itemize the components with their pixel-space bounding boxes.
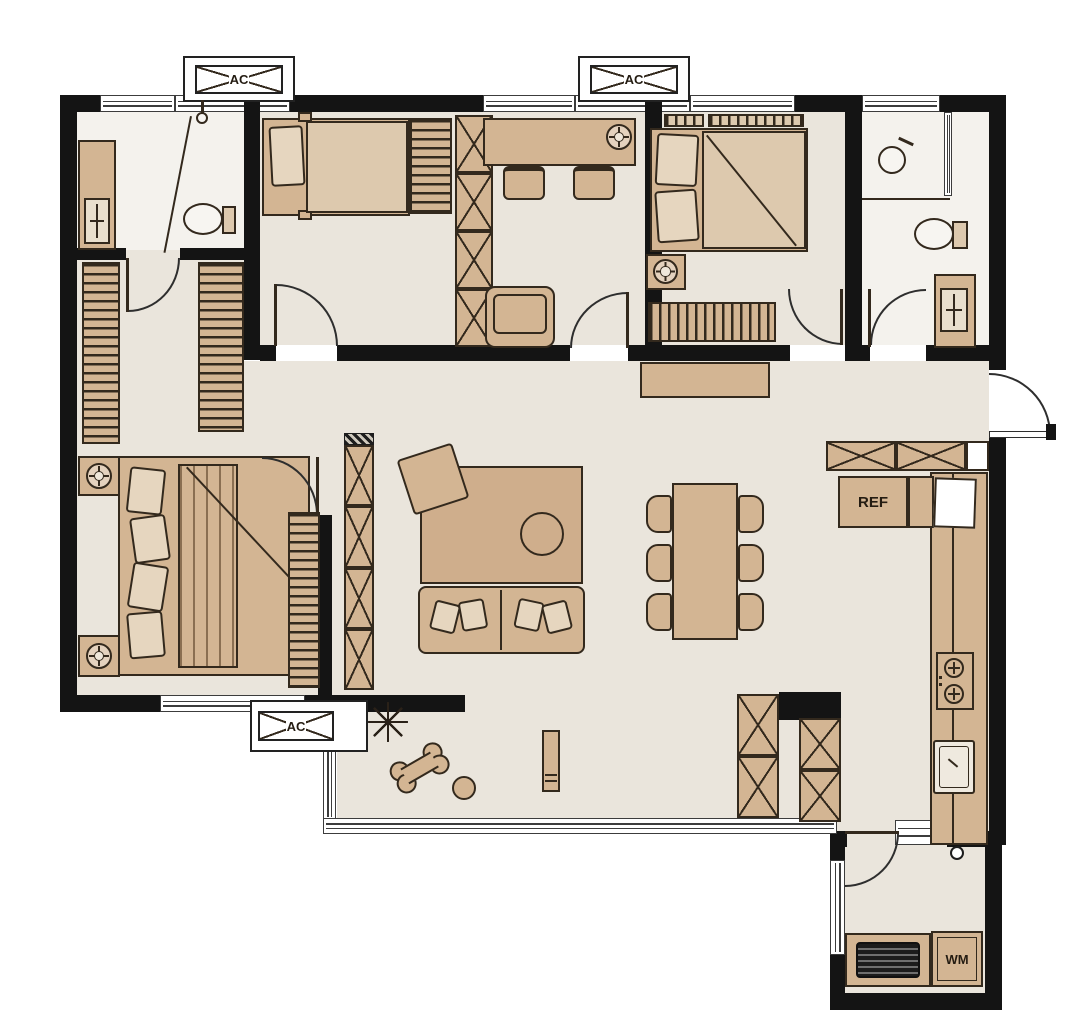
ac-platform-bottom-box: AC [258, 711, 334, 741]
sideboard [640, 362, 770, 398]
snowflake-icon [368, 702, 408, 742]
kitchen-prep-sink [933, 477, 977, 528]
wardrobe-hanging-icon [410, 118, 452, 214]
ceiling-lamp-icon [86, 463, 112, 489]
cabinet-x-icon [455, 231, 493, 289]
wall-bedroom-bathroom-divider [845, 95, 862, 361]
stove-knob [939, 676, 942, 679]
cabinet-x-icon [455, 173, 493, 231]
ceiling-lamp-icon [606, 124, 632, 150]
toilet-icon [914, 218, 954, 250]
sink-icon [878, 146, 906, 174]
cabinet-x-icon [737, 756, 779, 818]
pillow-icon [655, 133, 700, 187]
door-leaf-bedroom-small [274, 284, 277, 346]
dining-chair-icon [738, 544, 764, 582]
pillow-icon [126, 466, 167, 516]
stove-burner [944, 684, 964, 704]
wall-mid-horizontal-2 [628, 345, 790, 361]
dining-table-icon [672, 483, 738, 640]
door-leaf-laundry [845, 831, 899, 834]
cabinet-x-icon [737, 694, 779, 756]
refrigerator-icon: REF [838, 476, 908, 528]
sink-icon [940, 288, 968, 332]
kitchen-sink-basin [939, 746, 969, 788]
kitchen-upper-cabinet [896, 441, 966, 471]
washing-machine-icon: WM [931, 931, 983, 987]
stove-knob [939, 683, 942, 686]
wall-dining-balcony-stub [779, 692, 841, 720]
stove-burner [944, 658, 964, 678]
door-leaf-master [316, 457, 319, 515]
vase-line [545, 780, 557, 782]
wall-bath-bedroom-divider [244, 95, 260, 360]
dining-chair-icon [738, 593, 764, 631]
shower-boundary-line [862, 198, 950, 200]
pillow-icon [126, 611, 166, 660]
door-leaf-closet [126, 258, 129, 312]
bed-blanket [178, 464, 238, 668]
cabinet-x-icon [344, 506, 374, 568]
wall-right-lower [989, 437, 1006, 845]
radiator-icon [856, 942, 920, 978]
door-leaf-bedroom-right [840, 289, 843, 345]
window-bedroom-right [690, 95, 795, 112]
window-bathroom-top-right [862, 95, 940, 112]
floor-drain-icon [950, 846, 964, 860]
wardrobe-hanging-icon [198, 262, 244, 432]
cabinet-x-icon [799, 718, 841, 770]
window-utility-left [830, 860, 845, 955]
cabinet-x-icon [344, 629, 374, 690]
blinds-icon [664, 114, 704, 127]
desk-chair-icon [503, 166, 545, 200]
wall-utility-bottom [830, 993, 1000, 1010]
dining-chair-icon [646, 544, 672, 582]
pillow-icon [458, 598, 489, 632]
toilet-tank [952, 221, 968, 249]
kitchen-upper-cabinet-end [966, 441, 989, 471]
bed-duvet [306, 121, 408, 213]
balcony-glass-front [323, 818, 837, 834]
wall-master-bottom-1 [60, 695, 160, 712]
vase-icon [542, 730, 560, 792]
dining-chair-icon [738, 495, 764, 533]
door-leaf-bathroom-right [868, 289, 871, 347]
ac-platform-top-left-box: AC [195, 65, 283, 94]
tv-cabinet-cap [344, 433, 374, 445]
kitchen-upper-cabinet [826, 441, 896, 471]
door-leaf-study [626, 292, 629, 348]
ceiling-lamp-icon [653, 259, 678, 284]
door-stop-entry [1046, 424, 1056, 440]
wall-bath-tl-bottom-2 [180, 248, 244, 260]
wall-master-right [318, 515, 332, 695]
wardrobe-hanging-icon [288, 512, 320, 688]
blinds-icon [708, 114, 804, 127]
ac-label-top-left: AC [229, 73, 250, 86]
refrigerator-label: REF [858, 495, 888, 510]
toilet-icon [183, 203, 223, 235]
shower-arm [201, 100, 204, 114]
balcony-glass-left [323, 748, 336, 820]
pillow-icon [129, 514, 171, 565]
washing-machine-label: WM [945, 953, 968, 966]
wall-bath-tr-bottom-1 [862, 345, 870, 361]
sink-icon [84, 198, 110, 244]
wall-utility-left-2 [830, 955, 845, 1010]
dining-chair-icon [646, 495, 672, 533]
dining-chair-icon [646, 593, 672, 631]
door-swing-entry [989, 373, 1051, 435]
wall-top-2 [290, 95, 483, 112]
wall-bed2-stub [260, 345, 276, 361]
pillow-icon [127, 561, 170, 612]
ac-platform-top-right-box: AC [590, 65, 678, 94]
cabinet-x-icon [344, 445, 374, 506]
pillow-icon [654, 189, 700, 244]
wardrobe-hanging-icon [648, 302, 776, 342]
coffee-table-icon [520, 512, 564, 556]
armchair-cushion [493, 294, 547, 334]
vase-line [545, 774, 557, 776]
desk-chair-icon [573, 166, 615, 200]
wall-right-upper [989, 95, 1006, 370]
ball-icon [452, 776, 476, 800]
floor-plan: AC AC AC [0, 0, 1080, 1013]
wall-left [60, 95, 77, 712]
pillow-icon [268, 125, 305, 187]
ac-label-top-right: AC [624, 73, 645, 86]
ceiling-lamp-icon [86, 643, 112, 669]
sofa-seam [500, 590, 502, 650]
wardrobe-hanging-icon [82, 262, 120, 444]
wall-utility-left-1 [830, 845, 845, 860]
ac-label-bottom: AC [286, 720, 307, 733]
shower-glass-panel [944, 112, 952, 196]
toilet-tank [222, 206, 236, 234]
wall-utility-right [985, 845, 1002, 1010]
cabinet-x-icon [799, 770, 841, 822]
window-study [483, 95, 575, 112]
window-bathroom-top-left [100, 95, 175, 112]
cabinet-x-icon [344, 568, 374, 629]
door-leaf-entry [989, 431, 1051, 438]
kitchen-cabinet [908, 476, 934, 528]
